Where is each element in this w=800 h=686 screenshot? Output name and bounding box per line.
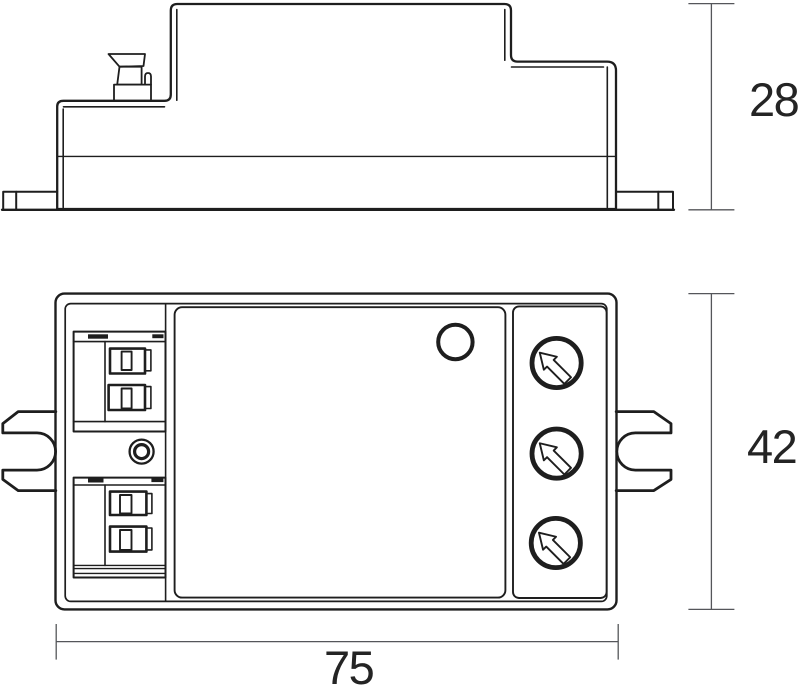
terminal-block-lower bbox=[74, 478, 166, 578]
dimension-side-height bbox=[688, 4, 734, 210]
technical-drawing bbox=[0, 0, 800, 686]
front-view bbox=[3, 294, 671, 610]
clip-base bbox=[114, 85, 151, 101]
latch-mark bbox=[152, 334, 163, 338]
center-panel bbox=[175, 307, 506, 597]
led-indicator-icon bbox=[438, 325, 472, 359]
wire-connector bbox=[110, 492, 152, 515]
wire-connector bbox=[110, 527, 152, 552]
screw-hole-icon bbox=[130, 440, 154, 464]
dial-icon-top bbox=[532, 338, 581, 387]
clip-latch bbox=[145, 73, 151, 85]
clip-stem bbox=[117, 67, 141, 85]
dimension-label-front-height: 42 bbox=[747, 423, 796, 470]
technical-drawing-canvas: 28 42 75 bbox=[0, 0, 800, 686]
side-view-inner-edges bbox=[63, 10, 607, 208]
terminal-block-upper bbox=[74, 332, 166, 432]
dimension-front-height bbox=[688, 294, 734, 610]
dimension-label-width: 75 bbox=[324, 644, 373, 686]
foot-right bbox=[616, 192, 673, 209]
foot-left bbox=[3, 192, 57, 209]
mounting-clip bbox=[109, 54, 152, 101]
wire-connector bbox=[109, 385, 151, 410]
wire-connector bbox=[110, 349, 151, 374]
dial-icon-bottom bbox=[531, 518, 580, 567]
latch-mark bbox=[88, 334, 108, 338]
side-view bbox=[2, 4, 674, 210]
dimension-label-side-height: 28 bbox=[749, 76, 798, 123]
dial-icon-middle bbox=[532, 429, 581, 478]
latch-mark bbox=[88, 478, 104, 482]
terminal-block-upper-outline bbox=[74, 332, 166, 432]
front-view-inner-outline bbox=[65, 304, 607, 602]
side-view-feet bbox=[3, 192, 673, 209]
mounting-ear-left bbox=[3, 412, 56, 491]
clip-head bbox=[109, 54, 146, 67]
mounting-ear-right bbox=[616, 412, 671, 491]
latch-mark bbox=[151, 478, 163, 482]
